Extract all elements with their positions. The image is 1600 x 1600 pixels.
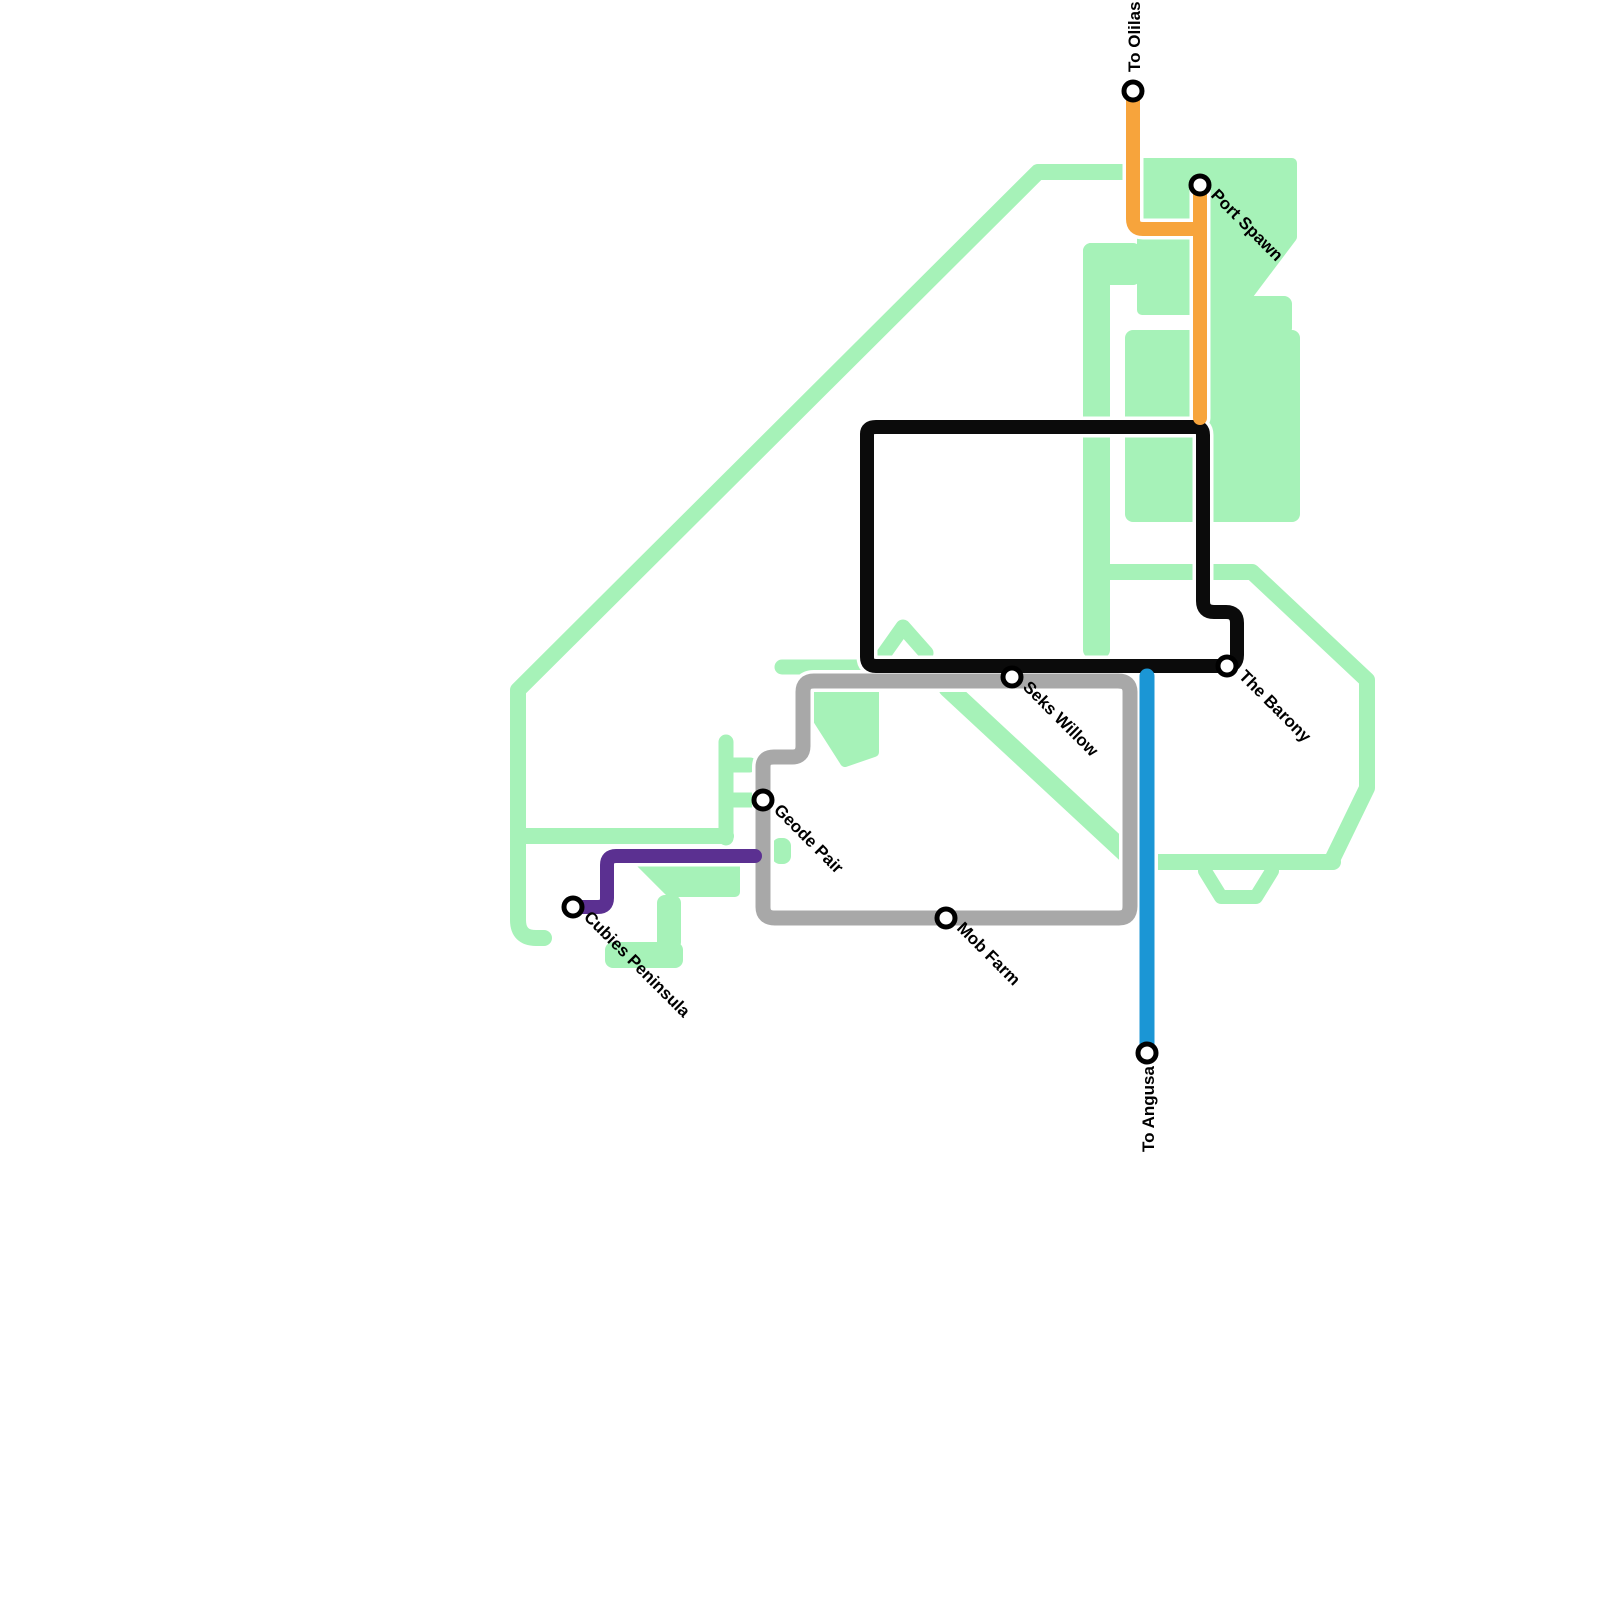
geode-east-patch bbox=[772, 838, 791, 864]
station-marker-the-barony[interactable] bbox=[1218, 657, 1236, 675]
cubies-blob-b bbox=[657, 895, 681, 950]
station-marker-geode-pair[interactable] bbox=[754, 791, 772, 809]
central-vertical-band bbox=[1083, 243, 1110, 658]
map-canvas: To OlilasPort SpawnThe BaronySeks Willow… bbox=[0, 0, 1600, 1600]
east-block-north-arm bbox=[1210, 296, 1292, 336]
station-marker-seks-willow[interactable] bbox=[1003, 668, 1021, 686]
station-label-to-angusa: To Angusa bbox=[1139, 1066, 1158, 1152]
station-label-to-olilas: To Olilas bbox=[1125, 1, 1144, 72]
station-marker-cubies-peninsula[interactable] bbox=[564, 898, 582, 916]
central-band-cap bbox=[1083, 243, 1141, 285]
station-marker-port-spawn[interactable] bbox=[1191, 176, 1209, 194]
station-marker-to-olilas[interactable] bbox=[1124, 82, 1142, 100]
station-marker-to-angusa[interactable] bbox=[1138, 1044, 1156, 1062]
transit-map: To OlilasPort SpawnThe BaronySeks Willow… bbox=[0, 0, 1600, 1600]
station-marker-mob-farm[interactable] bbox=[937, 909, 955, 927]
